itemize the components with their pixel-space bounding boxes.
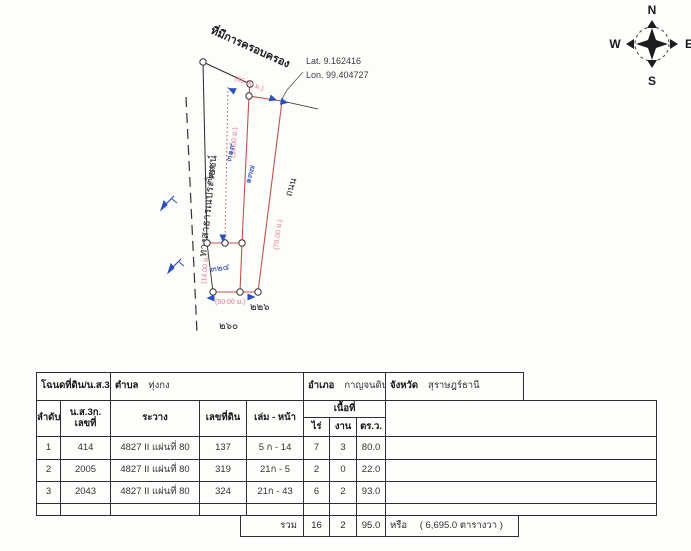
province-label: จังหวัด <box>390 380 418 391</box>
cell-volumepage: 5 ก - 14 <box>247 437 304 460</box>
cell-rawang: 4827 II แผ่นที่ 80 <box>111 460 200 482</box>
cell-volumepage: 21ก - 43 <box>247 482 304 504</box>
cell-volumepage: 21ก - 5 <box>247 460 304 482</box>
compass-w-label: W <box>609 37 621 51</box>
neighbor-numbers: ๓๑๘ ถนน ๒๖๐ ๒๒๖ <box>203 165 299 332</box>
cell-remark <box>386 437 657 460</box>
parcel-137-label: ๑๓๗ <box>242 164 257 185</box>
table-row: 3 2043 4827 II แผ่นที่ 80 324 21ก - 43 6… <box>37 482 657 504</box>
col-ns3k-line1: น.ส.3ก. <box>61 408 110 419</box>
cell-order: 3 <box>37 482 61 504</box>
total-label: รวม <box>241 516 304 537</box>
cell-rai: 2 <box>304 460 330 482</box>
parcel-324-label: ๓๒๔ <box>210 261 230 274</box>
total-row: รวม 16 2 95.0 หรือ ( 6,695.0 ตารางวา ) <box>240 515 519 537</box>
empty-cell <box>247 504 304 516</box>
empty-cell <box>386 504 657 516</box>
cell-order: 1 <box>37 437 61 460</box>
survey-marker <box>246 93 252 99</box>
dim-quad-west: (14.00 ม.) <box>201 253 210 284</box>
direction-flag-icon <box>161 196 177 210</box>
cell-rawang: 4827 II แผ่นที่ 80 <box>111 437 200 460</box>
dim-arrow-icon <box>248 294 256 301</box>
latlon-leader-line <box>282 72 303 99</box>
cell-order: 2 <box>37 460 61 482</box>
cell-sqwah: 93.0 <box>357 482 386 504</box>
col-landno-header: เลขที่ดิน <box>200 401 247 437</box>
dim-arrow-icon <box>207 295 215 302</box>
cell-landno: 324 <box>200 482 247 504</box>
cell-ngan: 2 <box>330 482 357 504</box>
survey-marker <box>204 240 210 246</box>
dim-quad-south: (50.00 ม.) <box>215 299 246 306</box>
survey-marker <box>210 289 216 295</box>
dim-east-strip: (70.00 ม.) <box>273 219 284 250</box>
empty-cell <box>61 504 111 516</box>
total-alt-label: หรือ <box>390 520 407 531</box>
col-ngan-header: งาน <box>330 418 357 437</box>
empty-cell <box>330 504 357 516</box>
west-boundary-319-dotted <box>225 87 228 243</box>
total-rai: 16 <box>304 516 330 537</box>
east-boundary-324 <box>240 243 242 292</box>
amphoe-header: อำเภอกาญจนดิษฐ์ <box>304 373 386 401</box>
col-rai-header: ไร่ <box>304 418 330 437</box>
cell-sqwah: 22.0 <box>357 460 386 482</box>
deed-type-header: โฉนดที่ดิน/น.ส.3ก <box>37 373 111 401</box>
neighbor-260-label: ๒๖๐ <box>219 321 238 332</box>
survey-marker <box>200 59 206 65</box>
parcel-319-label: ๓๑๙ <box>223 142 237 163</box>
header-spacer <box>524 373 657 401</box>
table-empty-row <box>37 504 657 516</box>
dim-arrow-icon <box>226 85 236 95</box>
cell-ngan: 0 <box>330 460 357 482</box>
province-value: สุราษฎร์ธานี <box>428 380 480 391</box>
lat-value: Lat. 9.162416 <box>306 56 361 66</box>
possession-title: ที่มีการครอบครอง <box>209 22 293 70</box>
amphoe-label: อำเภอ <box>308 380 334 391</box>
compass-star-icon <box>636 28 668 60</box>
cell-rai: 7 <box>304 437 330 460</box>
empty-cell <box>200 504 247 516</box>
neighbor-226-label: ๒๒๖ <box>250 302 270 313</box>
total-ngan: 2 <box>330 516 357 537</box>
scanned-survey-document: N S W E ทางสาธารณประโยชน์ <box>0 0 691 551</box>
cell-rai: 6 <box>304 482 330 504</box>
table-row: 2 2005 4827 II แผ่นที่ 80 319 21ก - 5 2 … <box>37 460 657 482</box>
compass-south-arrow-icon <box>647 60 657 68</box>
tambon-value: ทุ่งกง <box>148 380 169 391</box>
col-order-header: ลำดับ <box>37 401 61 437</box>
amphoe-value: กาญจนดิษฐ์ <box>344 380 385 391</box>
total-alt: หรือ ( 6,695.0 ตารางวา ) <box>386 516 519 537</box>
compass-east-arrow-icon <box>670 39 678 49</box>
survey-marker <box>239 240 245 246</box>
compass-s-label: S <box>648 74 656 88</box>
cell-landno: 137 <box>200 437 247 460</box>
direction-flag-icon <box>168 259 184 273</box>
dim-top: (66.00 ม.) <box>233 75 264 92</box>
dim-arrow-icon <box>269 95 279 104</box>
total-sqwah: 95.0 <box>357 516 386 537</box>
table-header-row-2: ลำดับ น.ส.3ก. เลขที่ ระวาง เลขที่ดิน เล่… <box>37 401 657 418</box>
survey-marker <box>237 289 243 295</box>
remark-header <box>386 401 657 437</box>
tambon-label: ตำบล <box>115 380 138 391</box>
empty-cell <box>111 504 200 516</box>
total-row-tr: รวม 16 2 95.0 หรือ ( 6,695.0 ตารางวา ) <box>241 516 519 537</box>
lon-value: Lon. 99.404727 <box>306 70 369 80</box>
col-area-header: เนื้อที่ <box>304 401 386 418</box>
compass-e-label: E <box>685 37 691 51</box>
survey-diagram: N S W E ทางสาธารณประโยชน์ <box>0 0 691 371</box>
cell-ns3k: 2043 <box>61 482 111 504</box>
road-east-label: ถนน <box>283 176 299 198</box>
compass-west-arrow-icon <box>626 39 634 49</box>
compass-rose: N S W E <box>609 3 691 88</box>
table-header-row-1: โฉนดที่ดิน/น.ส.3ก ตำบลทุ่งกง อำเภอกาญจนด… <box>37 373 657 401</box>
compass-n-label: N <box>648 3 657 17</box>
parcel-table: โฉนดที่ดิน/น.ส.3ก ตำบลทุ่งกง อำเภอกาญจนด… <box>36 372 657 516</box>
col-volumepage-header: เล่ม - หน้า <box>247 401 304 437</box>
compass-north-arrow-icon <box>647 20 657 28</box>
survey-marker <box>255 289 261 295</box>
col-ns3k-header: น.ส.3ก. เลขที่ <box>61 401 111 437</box>
cell-remark <box>386 482 657 504</box>
empty-cell <box>357 504 386 516</box>
cell-ngan: 3 <box>330 437 357 460</box>
parcel-boundaries <box>203 62 318 292</box>
cell-rawang: 4827 II แผ่นที่ 80 <box>111 482 200 504</box>
province-header: จังหวัดสุราษฎร์ธานี <box>386 373 524 401</box>
tambon-header: ตำบลทุ่งกง <box>111 373 304 401</box>
east-boundary-137 <box>258 101 282 292</box>
cell-ns3k: 2005 <box>61 460 111 482</box>
cell-ns3k: 414 <box>61 437 111 460</box>
cell-landno: 319 <box>200 460 247 482</box>
col-sqwah-header: ตร.ว. <box>357 418 386 437</box>
total-alt-value: ( 6,695.0 ตารางวา ) <box>420 520 503 531</box>
cell-remark <box>386 460 657 482</box>
cell-sqwah: 80.0 <box>357 437 386 460</box>
col-rawang-header: ระวาง <box>111 401 200 437</box>
public-road-line <box>186 97 197 333</box>
empty-cell <box>304 504 330 516</box>
empty-cell <box>37 504 61 516</box>
col-ns3k-line2: เลขที่ <box>61 419 110 430</box>
table-row: 1 414 4827 II แผ่นที่ 80 137 5 ก - 14 7 … <box>37 437 657 460</box>
